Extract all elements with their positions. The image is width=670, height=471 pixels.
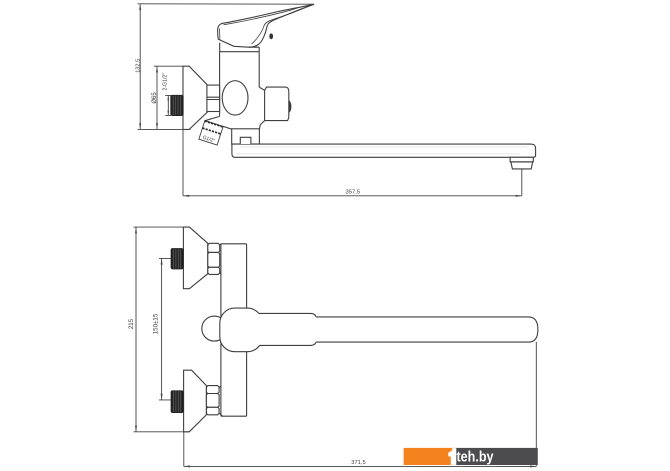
svg-text:215: 215 <box>128 318 135 329</box>
svg-text:371,5: 371,5 <box>351 460 366 466</box>
svg-text:teh.by: teh.by <box>457 450 495 466</box>
svg-text:150±15: 150±15 <box>153 313 160 334</box>
svg-text:Ø65: Ø65 <box>152 92 158 104</box>
svg-text:2-G1/2": 2-G1/2" <box>163 73 169 91</box>
svg-text:132,5: 132,5 <box>136 59 142 73</box>
svg-text:357,5: 357,5 <box>346 190 361 196</box>
